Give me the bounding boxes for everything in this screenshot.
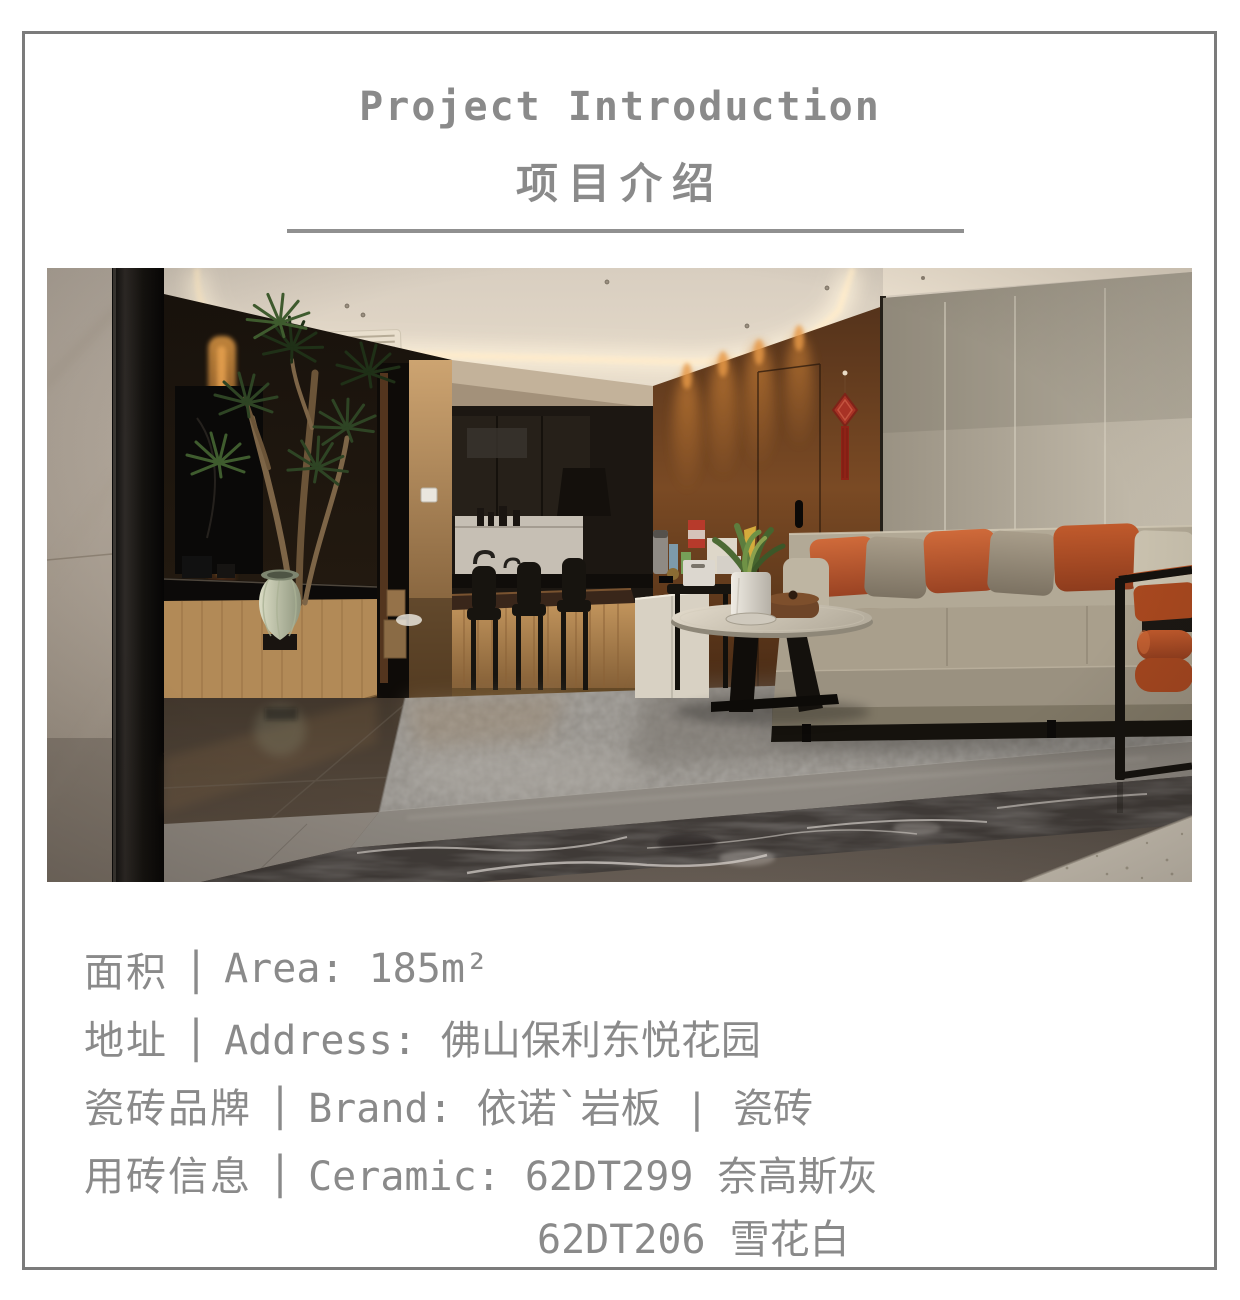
page-subtitle: 项目介绍 [0,150,1240,211]
info-label: 面积 [84,940,168,998]
interior-illustration [47,268,1192,882]
info-value: Ceramic: 62DT299 奈高斯灰 [308,1144,877,1202]
info-row-area: 面积 | Area: 185m² [84,935,878,1003]
title-divider [287,229,964,233]
info-row-ceramic: 用砖信息 | Ceramic: 62DT299 奈高斯灰 [84,1139,878,1207]
info-label: 地址 [84,1008,168,1066]
info-label: 瓷砖品牌 [84,1076,252,1134]
info-row-brand: 瓷砖品牌 | Brand: 依诺`岩板 | 瓷砖 [84,1071,878,1139]
info-separator: | [184,943,208,995]
project-info: 面积 | Area: 185m² 地址 | Address: 佛山保利东悦花园 … [84,935,878,1265]
info-row-ceramic-2: 62DT206 雪花白 [84,1207,878,1265]
vignette [47,268,1192,882]
page-title: Project Introduction [0,84,1240,130]
info-value: Area: 185m² [224,946,489,992]
info-value: Address: 佛山保利东悦花园 [224,1008,761,1066]
info-label: 用砖信息 [84,1144,252,1202]
page: Project Introduction 项目介绍 [0,0,1240,1300]
info-value: Brand: 依诺`岩板 | 瓷砖 [308,1076,813,1134]
info-value: 62DT206 雪花白 [84,1207,850,1265]
info-row-address: 地址 | Address: 佛山保利东悦花园 [84,1003,878,1071]
info-separator: | [268,1147,292,1199]
project-photo [47,268,1192,882]
info-separator: | [184,1011,208,1063]
info-separator: | [268,1079,292,1131]
